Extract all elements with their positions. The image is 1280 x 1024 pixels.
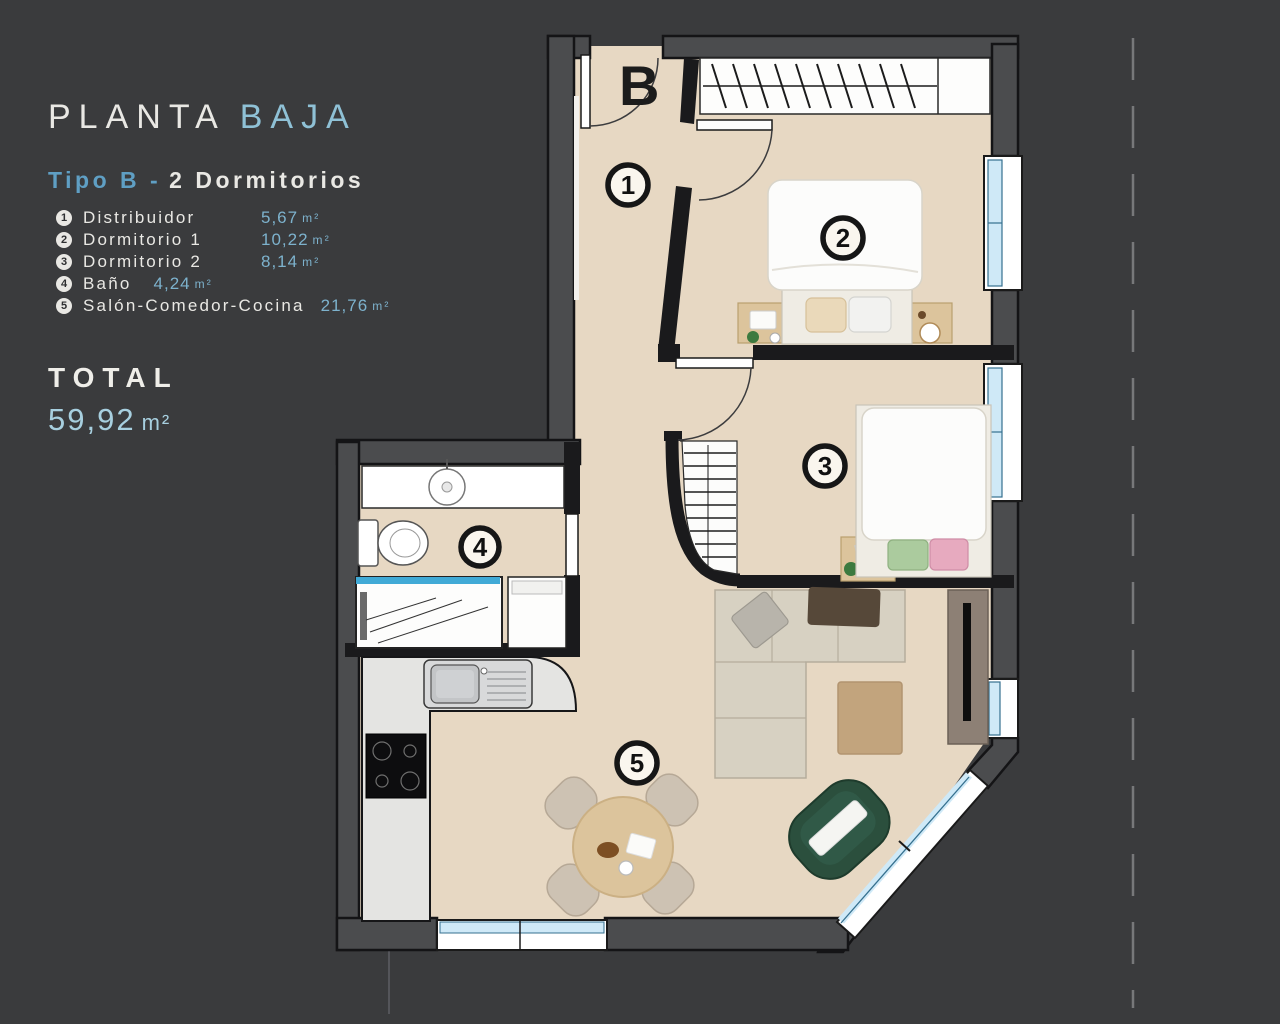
notepad: [750, 311, 776, 329]
table-pastry: [597, 842, 619, 858]
door-room2-leaf: [697, 120, 772, 130]
wall-left-lower: [337, 442, 359, 950]
cooktop: [366, 734, 426, 798]
wall-bottom-left: [337, 918, 437, 950]
dining-table: [573, 797, 673, 897]
sofa-throw: [807, 587, 880, 627]
floorplan-svg: B 1 2 3 4 5: [0, 0, 1280, 1024]
wall-right-3: [992, 501, 1018, 679]
wall-bath-east-upper: [564, 442, 580, 514]
svg-text:3: 3: [818, 451, 832, 481]
entrance-letter: B: [619, 54, 659, 117]
wall-right-1: [992, 44, 1018, 156]
entrance-door-leaf: [581, 55, 590, 128]
small-dish: [918, 311, 926, 319]
cup: [770, 333, 780, 343]
room-marker-3: 3: [805, 446, 845, 486]
sink-drain: [442, 482, 452, 492]
window-living-south: [437, 920, 607, 950]
wall-left-upper: [548, 36, 574, 447]
svg-text:5: 5: [630, 748, 644, 778]
plant-icon: [747, 331, 759, 343]
window-room2: [984, 156, 1022, 290]
wall-inner-face: [574, 96, 579, 300]
svg-text:2: 2: [836, 223, 850, 253]
door-room3-leaf: [676, 358, 753, 368]
bed3-pillow-pink: [930, 539, 968, 570]
coffee-cup: [920, 323, 940, 343]
table-cup: [619, 861, 633, 875]
door-bathroom: [566, 514, 578, 576]
wall-bathroom-north: [337, 440, 580, 464]
wall-top: [663, 36, 1018, 58]
bedroom2-furniture: [841, 405, 991, 581]
bed2-pillow-beige: [806, 298, 846, 332]
bed2-pillow-white: [849, 297, 891, 332]
room-marker-2: 2: [823, 218, 863, 258]
toilet: [358, 520, 428, 566]
shower: [356, 577, 502, 648]
svg-text:4: 4: [473, 532, 488, 562]
window-living-east: [986, 679, 1018, 738]
wall-bottom-right: [605, 918, 848, 950]
wall-bed2-south: [753, 345, 1014, 360]
bedroom1-furniture: [738, 180, 952, 344]
wardrobe-room2: [700, 58, 990, 114]
floorplan-page: PLANTABAJA Tipo B -2 Dormitorios 1 Distr…: [0, 0, 1280, 1024]
pouf-rug: [838, 682, 902, 754]
room-marker-1: 1: [608, 165, 648, 205]
bed3-duvet: [862, 408, 986, 540]
room-marker-4: 4: [461, 528, 499, 566]
bath-cabinet: [508, 577, 566, 648]
tv-screen: [963, 603, 971, 721]
bed3-pillow-green: [888, 540, 928, 570]
kitchen-sink: [424, 660, 532, 708]
svg-text:1: 1: [621, 170, 635, 200]
room-marker-5: 5: [617, 743, 657, 783]
